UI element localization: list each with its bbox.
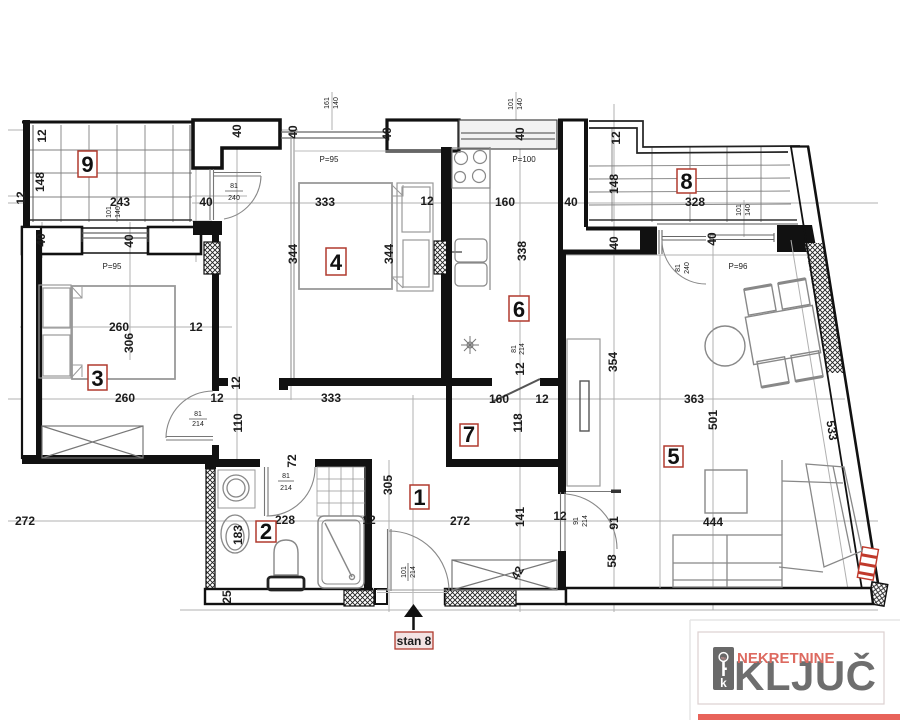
- svg-text:148: 148: [33, 172, 47, 192]
- svg-text:12: 12: [210, 391, 224, 405]
- svg-text:81: 81: [230, 183, 238, 190]
- svg-text:25: 25: [220, 590, 234, 604]
- svg-text:7: 7: [463, 422, 475, 447]
- svg-text:12: 12: [420, 194, 434, 208]
- svg-text:110: 110: [231, 413, 245, 433]
- svg-text:91: 91: [607, 516, 621, 530]
- svg-text:183: 183: [231, 525, 245, 545]
- svg-text:328: 328: [685, 195, 705, 209]
- svg-text:338: 338: [515, 241, 529, 261]
- svg-text:72: 72: [285, 454, 299, 468]
- svg-text:363: 363: [684, 392, 704, 406]
- svg-text:214: 214: [519, 343, 526, 355]
- svg-text:12: 12: [535, 392, 549, 406]
- svg-text:81: 81: [511, 345, 518, 353]
- svg-text:260: 260: [109, 320, 129, 334]
- svg-text:9: 9: [81, 152, 93, 177]
- svg-text:5: 5: [667, 444, 679, 469]
- svg-text:333: 333: [321, 391, 341, 405]
- svg-text:12: 12: [189, 320, 203, 334]
- svg-text:81: 81: [282, 473, 290, 480]
- svg-text:40: 40: [705, 232, 719, 246]
- svg-text:272: 272: [450, 514, 470, 528]
- svg-text:1: 1: [413, 485, 425, 510]
- svg-text:8: 8: [680, 169, 692, 194]
- svg-text:140: 140: [115, 206, 122, 218]
- svg-text:214: 214: [410, 566, 417, 578]
- svg-text:filip: filip: [721, 657, 726, 661]
- svg-text:58: 58: [605, 554, 619, 568]
- svg-text:40: 40: [380, 127, 394, 141]
- svg-text:148: 148: [607, 174, 621, 194]
- svg-text:160: 160: [495, 195, 515, 209]
- svg-text:118: 118: [511, 413, 525, 433]
- svg-text:444: 444: [703, 515, 723, 529]
- svg-text:101: 101: [508, 98, 515, 110]
- svg-text:12: 12: [229, 376, 243, 390]
- svg-text:3: 3: [91, 366, 103, 391]
- svg-text:12: 12: [14, 191, 28, 205]
- svg-text:101: 101: [401, 566, 408, 578]
- svg-text:P=95: P=95: [103, 262, 122, 271]
- svg-text:140: 140: [745, 204, 752, 216]
- svg-text:12: 12: [35, 129, 49, 143]
- svg-text:214: 214: [192, 421, 204, 428]
- svg-text:81: 81: [675, 264, 682, 272]
- svg-text:140: 140: [333, 97, 340, 109]
- svg-text:91: 91: [573, 517, 580, 525]
- svg-text:306: 306: [122, 333, 136, 353]
- svg-text:160: 160: [489, 392, 509, 406]
- svg-text:40: 40: [564, 195, 578, 209]
- svg-text:260: 260: [115, 391, 135, 405]
- svg-text:240: 240: [228, 195, 240, 202]
- svg-text:12: 12: [513, 362, 527, 376]
- svg-text:501: 501: [706, 410, 720, 430]
- svg-text:40: 40: [122, 234, 136, 248]
- svg-text:6: 6: [513, 297, 525, 322]
- svg-text:354: 354: [606, 352, 620, 372]
- svg-text:12: 12: [609, 131, 623, 145]
- svg-text:k: k: [720, 676, 727, 690]
- svg-text:305: 305: [381, 475, 395, 495]
- svg-text:40: 40: [607, 236, 621, 250]
- svg-text:101: 101: [736, 204, 743, 216]
- svg-text:NEKRETNINE: NEKRETNINE: [737, 650, 835, 667]
- svg-text:2: 2: [260, 519, 272, 544]
- svg-text:stan 8: stan 8: [397, 634, 432, 648]
- svg-text:101: 101: [106, 206, 113, 218]
- svg-text:P=96: P=96: [729, 262, 748, 271]
- svg-text:228: 228: [275, 513, 295, 527]
- svg-text:40: 40: [513, 127, 527, 141]
- svg-text:40: 40: [286, 125, 300, 139]
- svg-text:40: 40: [34, 233, 48, 247]
- svg-text:161: 161: [324, 97, 331, 109]
- svg-text:344: 344: [382, 244, 396, 264]
- svg-text:4: 4: [330, 250, 343, 275]
- svg-text:140: 140: [517, 98, 524, 110]
- svg-text:344: 344: [286, 244, 300, 264]
- svg-text:40: 40: [199, 195, 213, 209]
- svg-text:12: 12: [553, 509, 567, 523]
- svg-text:214: 214: [280, 485, 292, 492]
- svg-text:P=95: P=95: [320, 155, 339, 164]
- svg-text:81: 81: [194, 411, 202, 418]
- svg-text:240: 240: [684, 262, 691, 274]
- svg-text:333: 333: [315, 195, 335, 209]
- svg-text:141: 141: [513, 507, 527, 527]
- svg-text:12: 12: [362, 513, 376, 527]
- svg-text:214: 214: [582, 515, 589, 527]
- svg-text:40: 40: [230, 124, 244, 138]
- svg-text:P=100: P=100: [512, 155, 536, 164]
- svg-text:272: 272: [15, 514, 35, 528]
